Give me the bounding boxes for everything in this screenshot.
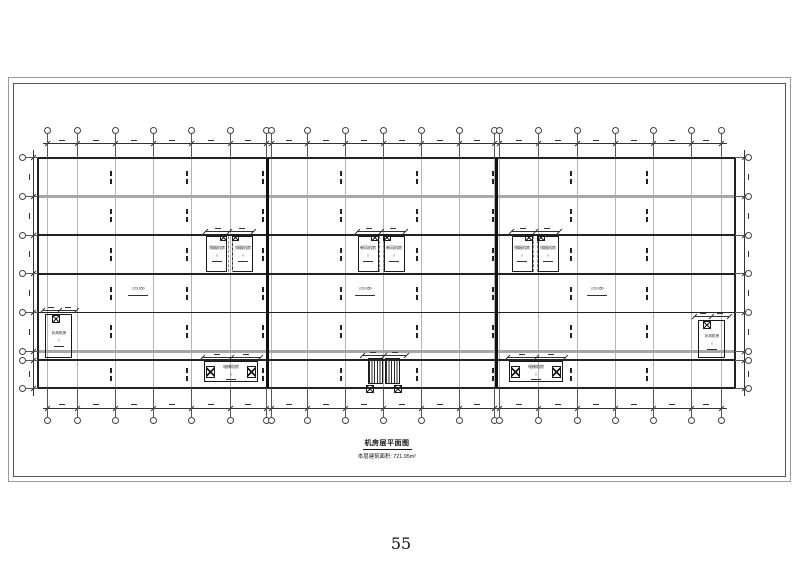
page-number: 55 <box>386 534 416 553</box>
page: ▽23.950▽23.950▽23.950排烟机房排烟机房▽▽新风机房新风机房▽… <box>0 0 800 565</box>
drawing-area-note: 本层建筑面积: 721.95m² <box>324 451 450 459</box>
drawing-title: 机房层平面图 <box>363 438 412 450</box>
drawing-frame-inner <box>13 83 786 477</box>
drawing-title-block: 机房层平面图 本层建筑面积: 721.95m² <box>317 432 457 460</box>
